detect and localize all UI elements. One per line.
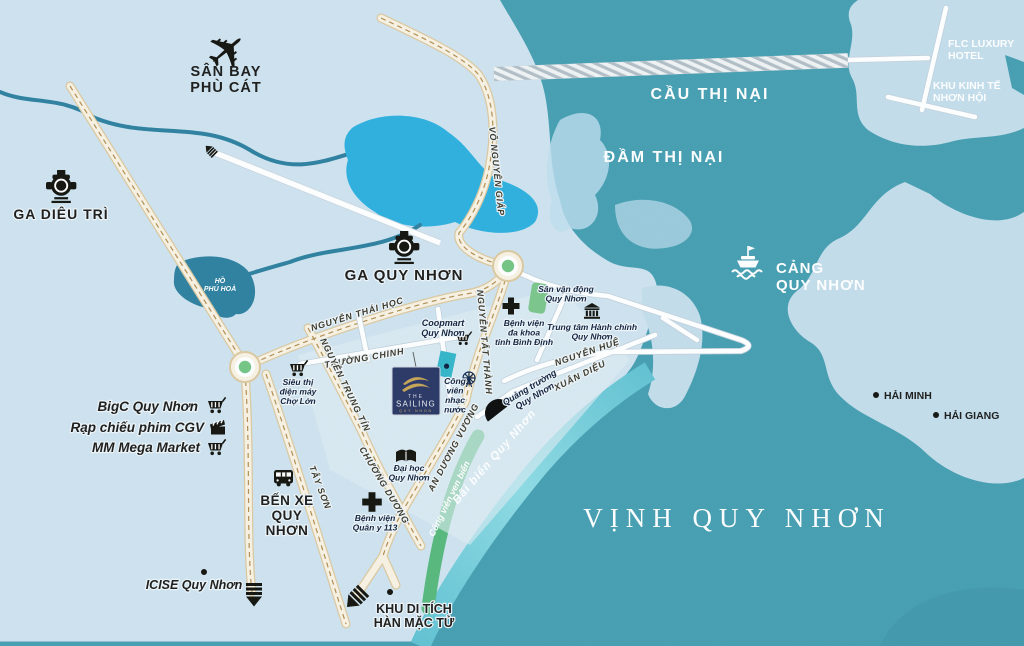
label-music-park: Côngviênnhạcnước [444,376,467,415]
hai-giang-dot [933,412,939,418]
label-bay: VỊNH QUY NHƠN [583,503,890,533]
label-university: Đại họcQuy Nhơn [388,463,429,483]
label-han-mac-tu: KHU DI TÍCHHÀN MẶC TỬ [374,601,455,630]
logo-city: QUY NHON [399,409,433,413]
university-book-icon [396,450,416,462]
label-hai-giang: HẢI GIANG [944,409,999,422]
label-airport: SÂN BAYPHÙ CÁT [190,62,261,96]
sea-bottom-strip [0,642,420,646]
hai-minh-dot [873,392,879,398]
label-quy-nhon-station: GA QUY NHƠN [345,267,464,284]
roundabout-west [230,352,260,382]
label-hai-minh: HẢI MINH [884,389,932,402]
roundabout-north [493,251,523,281]
label-stadium: Sân vận độngQuy Nhơn [538,284,595,304]
label-icise: ICISE Quy Nhơn [146,578,243,592]
label-bigc: BigC Quy Nhơn [97,399,198,414]
label-lagoon: ĐẦM THỊ NẠI [604,147,725,166]
logo-name: SAILING [396,400,436,409]
label-cho-lon: Siêu thịđiện máyChợ Lớn [280,377,318,406]
label-bridge: CẦU THỊ NẠI [651,84,770,103]
quy-nhon-map: ✈ VỊNH QUY NHƠN ĐẦM THỊ NẠI CẦU THỊ NẠI … [0,0,1024,646]
label-mega-market: MM Mega Market [92,440,201,455]
icise-dot [201,569,207,575]
label-dieu-tri-station: GA DIÊU TRÌ [13,205,108,222]
han-mac-tu-dot [387,589,393,595]
nhon-hoi-land [849,0,1024,146]
label-cgv: Rạp chiếu phim CGV [70,420,205,435]
label-coopmart: CoopmartQuy Nhơn [421,318,465,338]
label-hospital-military: Bệnh việnQuân y 113 [353,513,398,533]
map-canvas: ✈ VỊNH QUY NHƠN ĐẦM THỊ NẠI CẦU THỊ NẠI … [0,0,1024,646]
